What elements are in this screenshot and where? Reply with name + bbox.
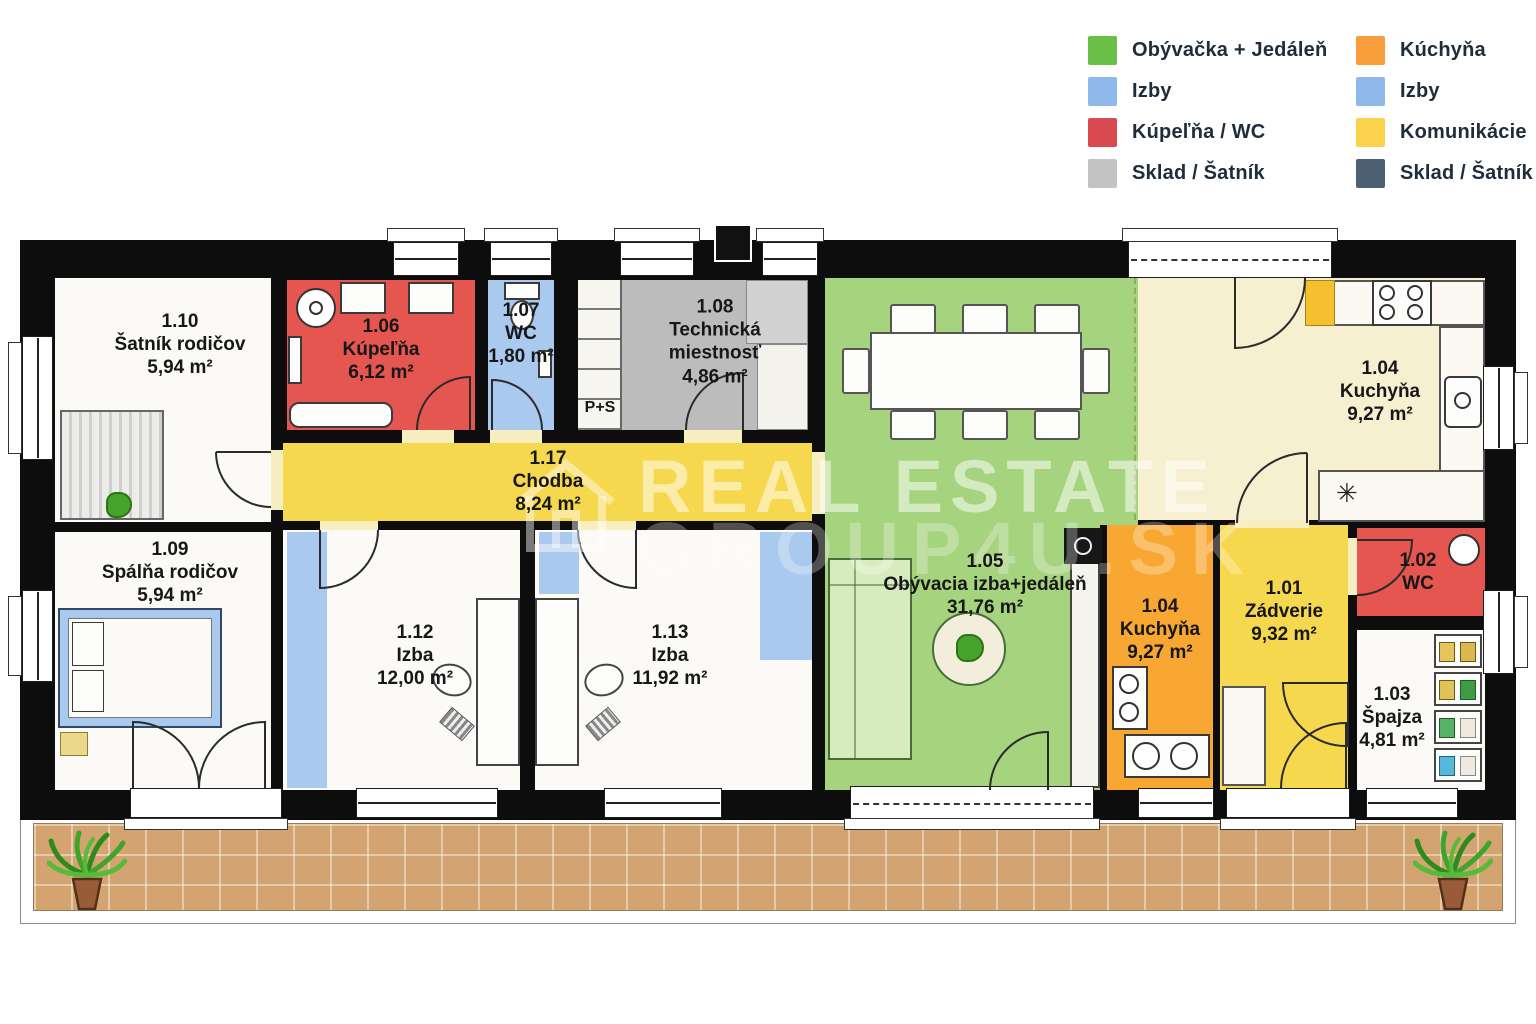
legend-item: Izby xyxy=(1088,77,1327,106)
floorplan: ✳ xyxy=(20,240,1516,820)
room-area: 31,76 m² xyxy=(947,597,1023,620)
room-number: 1.05 xyxy=(967,550,1004,573)
legend-swatch xyxy=(1356,159,1385,188)
pillow xyxy=(72,622,104,666)
legend-label: Izby xyxy=(1400,80,1440,103)
burner xyxy=(1379,285,1395,301)
room-name: Kúpeľňa xyxy=(343,338,420,361)
room-label-izba-112: 1.12 Izba 12,00 m² xyxy=(377,621,453,691)
room-number: 1.09 xyxy=(152,538,189,561)
window xyxy=(1366,788,1458,818)
window-sill xyxy=(1220,818,1356,830)
room-area: 4,81 m² xyxy=(1359,730,1424,753)
toilet-tank xyxy=(504,282,540,300)
legend-label: Kúpeľňa / WC xyxy=(1132,121,1265,144)
room-label-satnik: 1.10 Šatník rodičov 5,94 m² xyxy=(115,310,246,380)
room-area: 9,32 m² xyxy=(1251,624,1316,647)
room-number: 1.04 xyxy=(1142,595,1179,618)
room-label-obyvacia: 1.05 Obývacia izba+jedáleň 31,76 m² xyxy=(883,550,1086,620)
entry-cabinet xyxy=(1222,686,1266,786)
radiator xyxy=(288,336,302,384)
dining-chair xyxy=(890,304,936,334)
room-area: 9,27 m² xyxy=(1347,404,1412,427)
window-sill xyxy=(1122,228,1338,242)
room-label-spalna: 1.09 Spálňa rodičov 5,94 m² xyxy=(102,538,238,608)
pantry-cabinet-yellow xyxy=(1305,280,1335,326)
window-sill xyxy=(614,228,700,242)
door-gap-kupelna xyxy=(402,430,454,443)
window xyxy=(490,242,552,276)
window xyxy=(1483,366,1514,450)
pantry-item xyxy=(1439,718,1455,738)
pillow xyxy=(72,670,104,712)
room-label-zadverie: 1.01 Zádverie 9,32 m² xyxy=(1245,577,1323,647)
room-name: Chodba xyxy=(513,470,584,493)
room-label-spajza: 1.03 Špajza 4,81 m² xyxy=(1359,683,1424,753)
room-name: Kuchyňa xyxy=(1120,618,1200,641)
legend-item: Obývačka + Jedáleň xyxy=(1088,36,1327,65)
legend-swatch xyxy=(1356,118,1385,147)
burner xyxy=(1407,304,1423,320)
pantry-item xyxy=(1439,642,1455,662)
room-number: 1.08 xyxy=(697,296,734,319)
burner xyxy=(1119,674,1139,694)
room-number: 1.06 xyxy=(363,315,400,338)
room-label-kuchyna-cream: 1.04 Kuchyňa 9,27 m² xyxy=(1340,357,1420,427)
pantry-item xyxy=(1460,718,1476,738)
room-number: 1.12 xyxy=(397,621,434,644)
room-label-chodba: 1.17 Chodba 8,24 m² xyxy=(513,447,584,517)
terrace-door-living xyxy=(850,786,1094,820)
terrace-tiles xyxy=(33,823,1503,911)
burner xyxy=(1119,702,1139,722)
legend-swatch xyxy=(1356,77,1385,106)
dining-chair xyxy=(842,348,870,394)
legend-label: Izby xyxy=(1132,80,1172,103)
washer-dryer-label: P+S xyxy=(585,399,616,417)
legend-item: Sklad / Šatník xyxy=(1356,159,1533,188)
room-label-wc-horny: 1.07 WC 1,80 m² xyxy=(488,299,553,369)
wardrobe-strip-112 xyxy=(287,532,327,788)
sink-drain xyxy=(1454,392,1471,409)
open-plan-divider xyxy=(1134,278,1136,520)
window xyxy=(1483,590,1514,674)
legend-swatch xyxy=(1088,159,1117,188)
wardrobe-strip-113-right xyxy=(760,532,812,660)
room-number: 1.17 xyxy=(530,447,567,470)
window xyxy=(393,242,459,276)
room-number: 1.03 xyxy=(1374,683,1411,706)
door-gap-izba-113 xyxy=(578,521,636,530)
window-sill xyxy=(484,228,558,242)
window-sill xyxy=(8,342,22,454)
window xyxy=(620,242,694,276)
room-area: 11,92 m² xyxy=(633,668,708,691)
desk-112 xyxy=(476,598,520,766)
floorplan-canvas: ✳ xyxy=(0,0,1536,1024)
room-area: 5,94 m² xyxy=(147,357,212,380)
room-label-kupelna: 1.06 Kúpeľňa 6,12 m² xyxy=(343,315,420,385)
legend-column-right: Kúchyňa Izby Komunikácie Sklad / Šatník xyxy=(1356,36,1533,188)
window-sill xyxy=(844,818,1100,830)
sink-right xyxy=(408,282,454,314)
room-name: Kuchyňa xyxy=(1340,380,1420,403)
legend-item: Sklad / Šatník xyxy=(1088,159,1327,188)
wardrobe-strip-113-left xyxy=(539,532,579,594)
door-gap-technicka xyxy=(684,430,742,443)
legend-item: Izby xyxy=(1356,77,1533,106)
room-name: Zádverie xyxy=(1245,600,1323,623)
door-gap-wc-horny xyxy=(490,430,542,443)
burner xyxy=(1379,304,1395,320)
desk-113 xyxy=(535,598,579,766)
potted-plant-left xyxy=(47,827,127,913)
room-area: 12,00 m² xyxy=(377,668,453,691)
entry-door-gap xyxy=(1226,788,1350,818)
door-gap-kuchyna-zadverie xyxy=(1235,520,1309,528)
room-area: 9,27 m² xyxy=(1127,642,1192,665)
legend-swatch xyxy=(1088,118,1117,147)
sink-left xyxy=(340,282,386,314)
dining-chair xyxy=(890,410,936,440)
terrace-door-top xyxy=(1128,240,1332,278)
dining-table xyxy=(870,332,1082,410)
room-number: 1.13 xyxy=(652,621,689,644)
room-number: 1.02 xyxy=(1400,549,1437,572)
wall-green-orange xyxy=(1100,525,1107,790)
dining-chair xyxy=(1034,304,1080,334)
legend-label: Komunikácie xyxy=(1400,121,1527,144)
room-name: Šatník rodičov xyxy=(115,333,246,356)
pantry-item xyxy=(1439,680,1455,700)
washing-machine-drum xyxy=(309,301,323,315)
dining-chair xyxy=(962,410,1008,440)
window xyxy=(762,242,818,276)
bathtub xyxy=(289,402,393,428)
round-sink xyxy=(1448,534,1480,566)
pantry-item xyxy=(1460,680,1476,700)
nightstand xyxy=(60,732,88,756)
room-number: 1.01 xyxy=(1266,577,1303,600)
window xyxy=(22,336,53,460)
legend-label: Kúchyňa xyxy=(1400,39,1486,62)
legend-swatch xyxy=(1356,36,1385,65)
door-gap-chodba-obyvacka xyxy=(812,452,825,514)
room-number: 1.07 xyxy=(503,299,540,322)
chimney xyxy=(714,224,752,262)
washer-drum xyxy=(1132,742,1160,770)
dining-chair xyxy=(962,304,1008,334)
room-name: WC xyxy=(505,322,537,345)
room-name: Izba xyxy=(397,644,434,667)
window xyxy=(356,788,498,818)
room-number: 1.10 xyxy=(162,310,199,333)
pantry-item xyxy=(1439,756,1455,776)
legend-item: Komunikácie xyxy=(1356,118,1533,147)
window xyxy=(22,590,53,682)
dishwasher-symbol: ✳ xyxy=(1336,478,1358,509)
window-sill xyxy=(124,818,288,830)
room-name: Obývacia izba+jedáleň xyxy=(883,573,1086,596)
room-area: 5,94 m² xyxy=(137,585,202,608)
room-name: Špajza xyxy=(1362,706,1422,729)
room-name: Spálňa rodičov xyxy=(102,561,238,584)
room-label-kuchyna-orange: 1.04 Kuchyňa 9,27 m² xyxy=(1120,595,1200,665)
room-name: Technická miestnosť xyxy=(640,319,790,365)
window-sill xyxy=(387,228,465,242)
room-name: Izba xyxy=(652,644,689,667)
pantry-item xyxy=(1460,756,1476,776)
legend-column-left: Obývačka + Jedáleň Izby Kúpeľňa / WC Skl… xyxy=(1088,36,1327,188)
potted-plant-right xyxy=(1413,827,1493,913)
burner xyxy=(1407,285,1423,301)
legend-item: Kúchyňa xyxy=(1356,36,1533,65)
window-sill xyxy=(756,228,824,242)
window-sill xyxy=(8,596,22,676)
dining-chair xyxy=(1082,348,1110,394)
pantry-item xyxy=(1460,642,1476,662)
window xyxy=(1138,788,1214,818)
legend-label: Sklad / Šatník xyxy=(1132,162,1265,185)
room-name: WC xyxy=(1402,572,1434,595)
door-gap-izba-112 xyxy=(320,521,378,530)
room-label-izba-113: 1.13 Izba 11,92 m² xyxy=(633,621,708,691)
dryer-drum xyxy=(1170,742,1198,770)
door-gap-satnik xyxy=(271,450,283,510)
legend-swatch xyxy=(1088,77,1117,106)
window-sill xyxy=(1514,596,1528,668)
legend-item: Kúpeľňa / WC xyxy=(1088,118,1327,147)
legend-label: Obývačka + Jedáleň xyxy=(1132,39,1327,62)
legend-swatch xyxy=(1088,36,1117,65)
room-number: 1.04 xyxy=(1362,357,1399,380)
room-area: 4,86 m² xyxy=(682,365,747,388)
dining-chair xyxy=(1034,410,1080,440)
room-label-technicka: 1.08 Technická miestnosť 4,86 m² xyxy=(640,296,790,389)
terrace-door-bedroom xyxy=(130,788,282,818)
room-area: 6,12 m² xyxy=(348,362,413,385)
door-gap-wc-dolny xyxy=(1348,538,1357,595)
room-area: 1,80 m² xyxy=(488,346,553,369)
room-label-wc-dolny: 1.02 WC xyxy=(1400,549,1437,595)
window xyxy=(604,788,722,818)
window-sill xyxy=(1514,372,1528,444)
legend-label: Sklad / Šatník xyxy=(1400,162,1533,185)
room-area: 8,24 m² xyxy=(515,494,580,517)
